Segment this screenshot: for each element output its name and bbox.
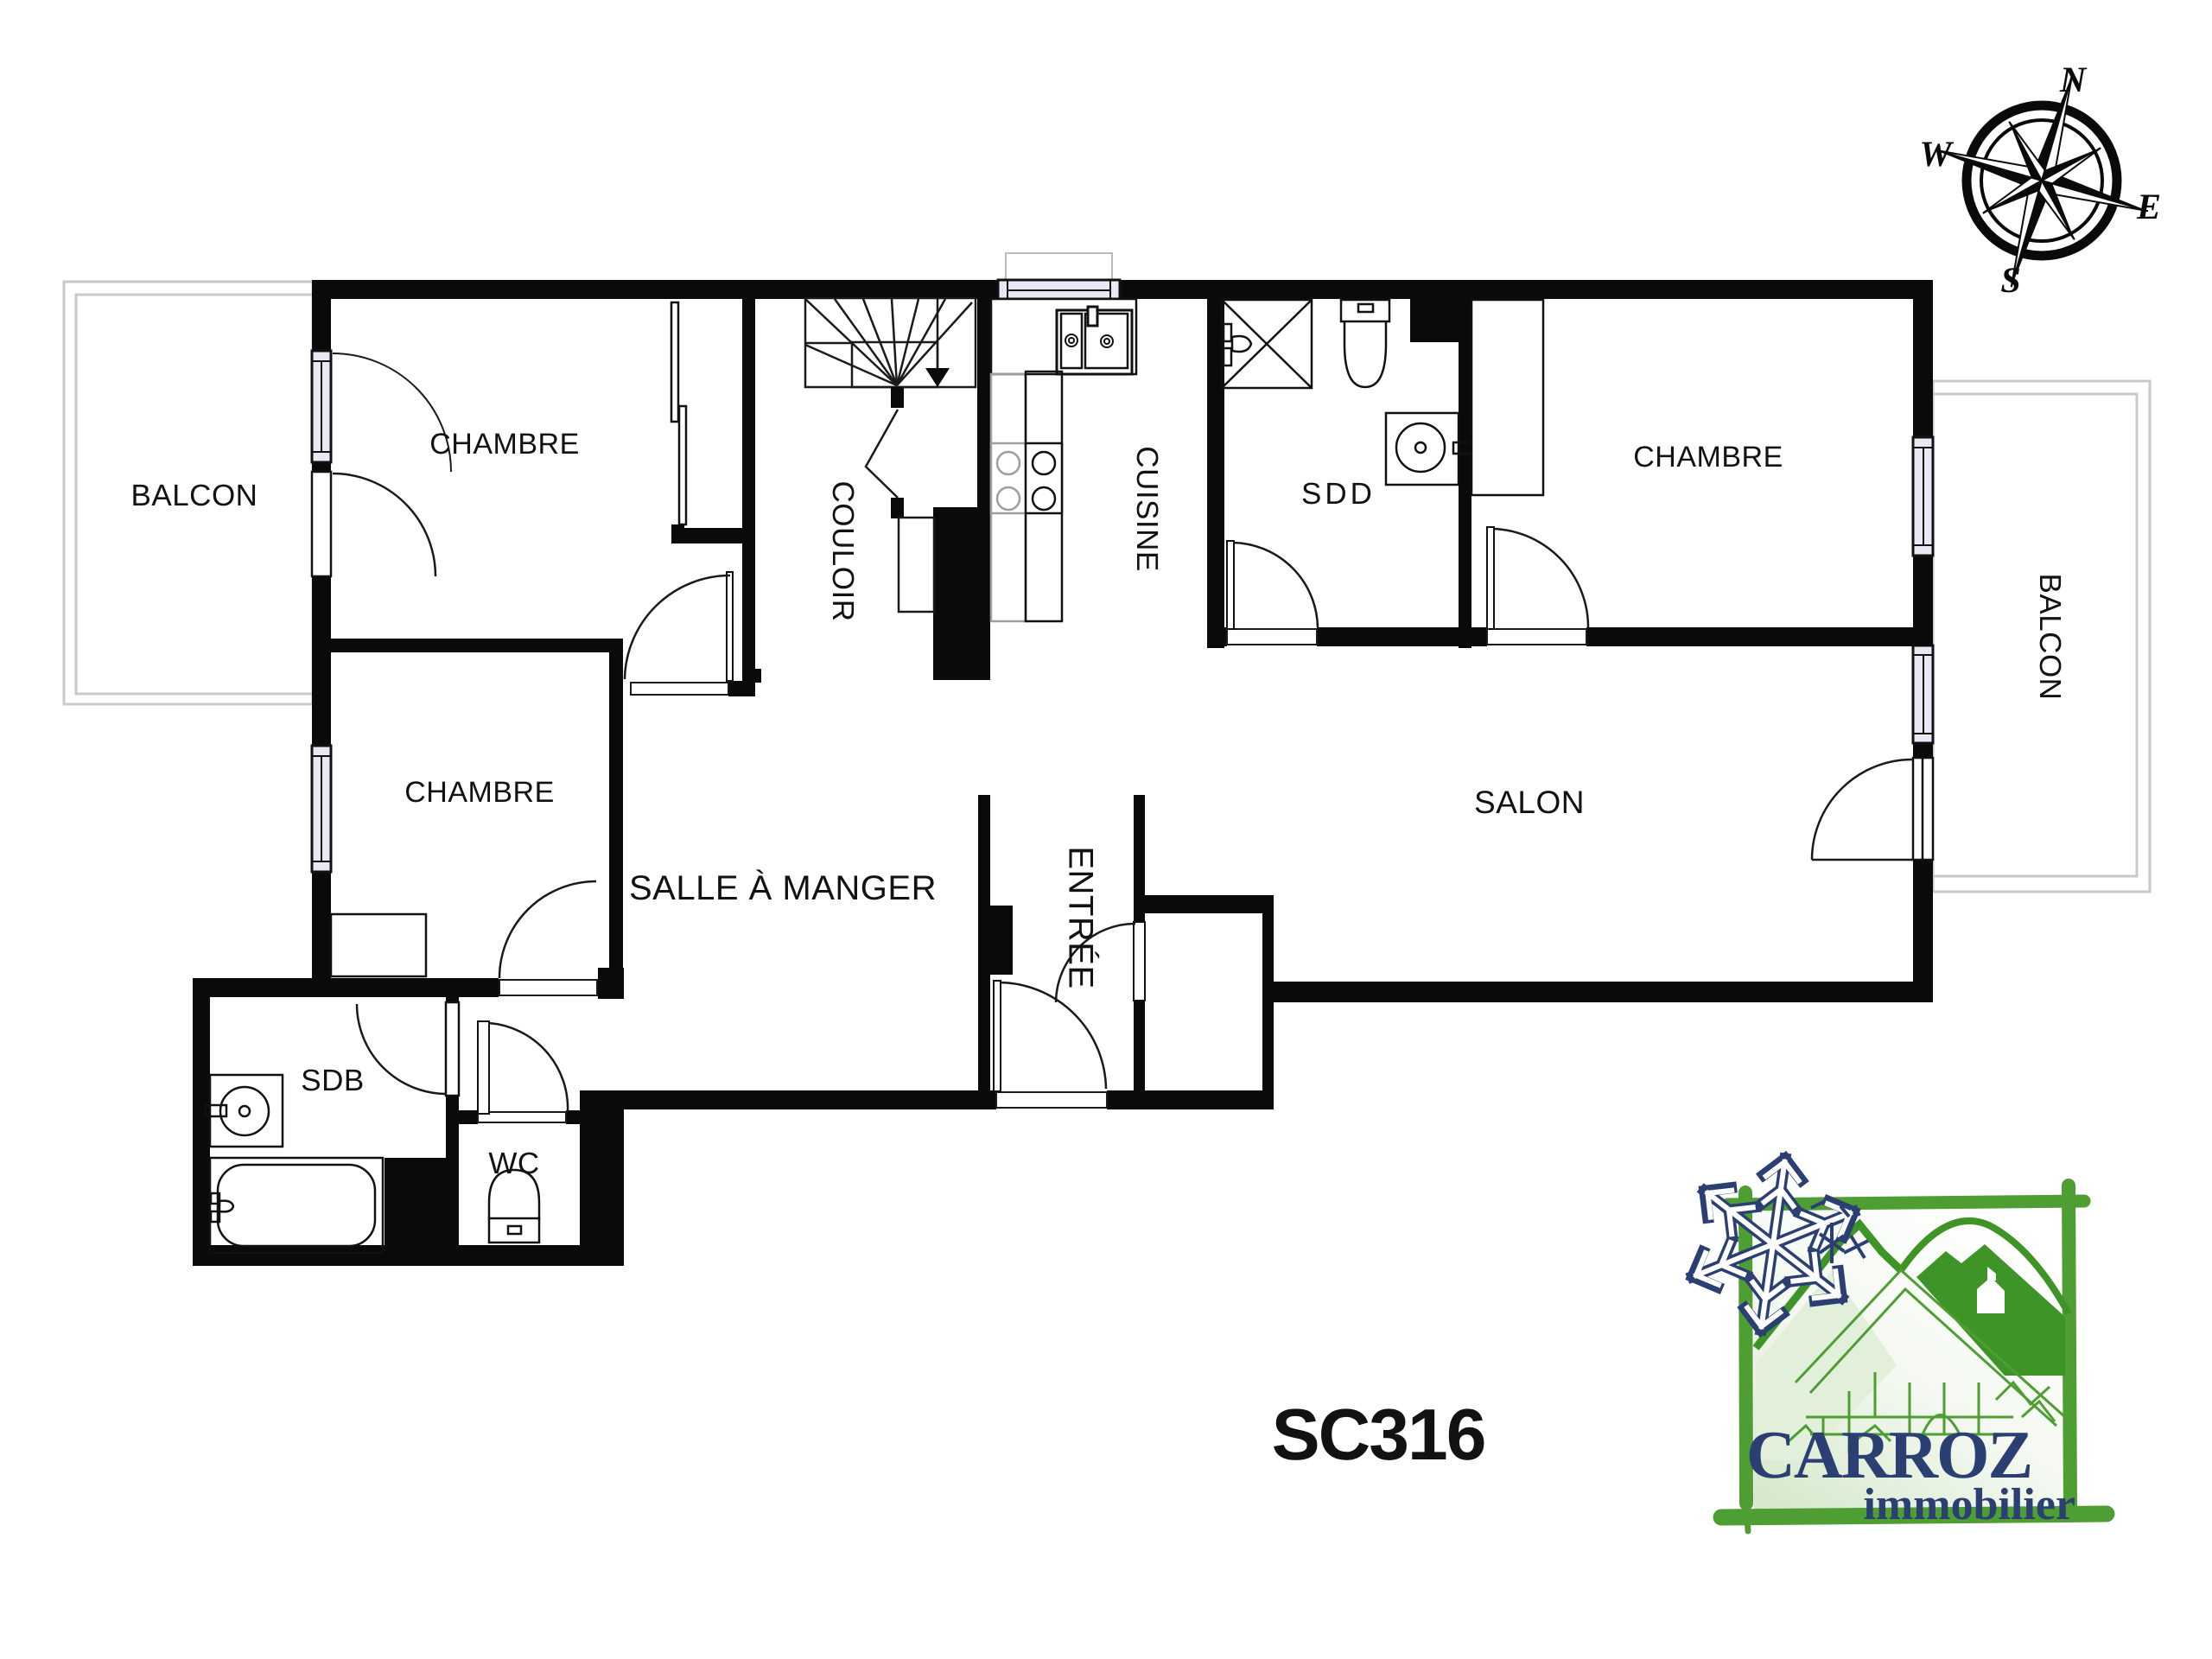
svg-text:S: S: [2000, 261, 2020, 301]
svg-text:SDB: SDB: [301, 1064, 364, 1097]
svg-text:CHAMBRE: CHAMBRE: [404, 776, 555, 809]
svg-text:CUISINE: CUISINE: [1130, 446, 1164, 571]
svg-text:E: E: [2136, 188, 2161, 227]
svg-text:CHAMBRE: CHAMBRE: [429, 428, 580, 461]
svg-text:BALCON: BALCON: [131, 479, 258, 512]
svg-text:ENTRÉE: ENTRÉE: [1061, 846, 1099, 988]
svg-text:immobilier: immobilier: [1863, 1480, 2075, 1529]
svg-text:SALON: SALON: [1474, 785, 1585, 820]
svg-text:SDD: SDD: [1301, 477, 1376, 511]
svg-text:WC: WC: [488, 1147, 539, 1180]
svg-text:CHAMBRE: CHAMBRE: [1633, 441, 1783, 474]
svg-text:COULOIR: COULOIR: [826, 481, 860, 622]
svg-text:BALCON: BALCON: [2033, 574, 2067, 701]
svg-text:SALLE À MANGER: SALLE À MANGER: [629, 869, 937, 907]
svg-text:W: W: [1919, 135, 1954, 175]
svg-text:N: N: [2059, 60, 2088, 100]
svg-text:SC316: SC316: [1272, 1394, 1485, 1475]
